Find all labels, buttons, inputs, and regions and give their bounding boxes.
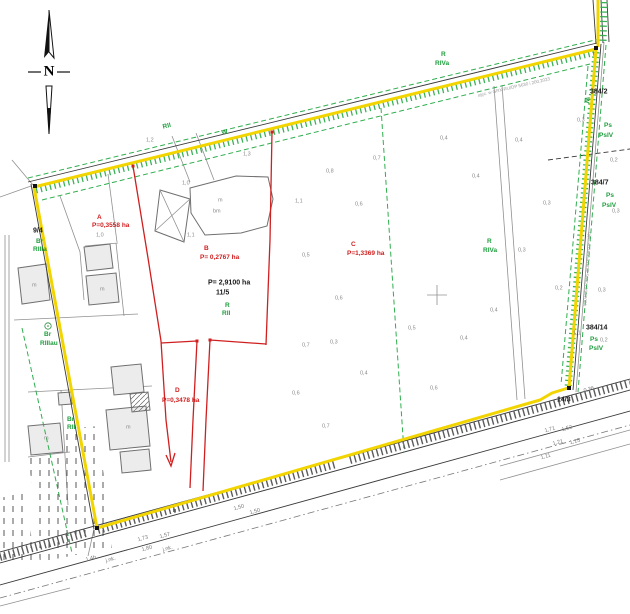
map-label: 0,8 [326, 169, 334, 175]
map-label: RII [67, 425, 75, 432]
map-label: 0,4 [515, 138, 523, 144]
map-label: 0,3 [598, 288, 606, 294]
map-label: W [582, 97, 589, 104]
map-label: 384/2 [590, 89, 608, 96]
map-label: m [44, 436, 49, 442]
map-label: RII [222, 311, 230, 318]
map-label: P= 2,9100 ha [208, 280, 250, 287]
map-canvas: NAP=0,3558 haBP= 0,2767 haCP=1,3369 haDP… [0, 0, 630, 614]
map-label: Br [44, 332, 51, 339]
map-label: Br [36, 239, 43, 246]
map-label: 0,2 [610, 158, 618, 164]
map-label: 0,3 [518, 248, 526, 254]
map-label: 0,4 [440, 136, 448, 142]
map-label: N [44, 65, 55, 80]
map-label: m [126, 425, 131, 431]
map-label: A [97, 215, 102, 222]
map-label: 0,6 [292, 391, 300, 397]
map-label: 14/3 [557, 397, 571, 404]
map-label: 0,4 [490, 308, 498, 314]
map-label: 0,6 [430, 386, 438, 392]
map-label: m [218, 198, 223, 204]
map-label: RIVa [483, 248, 497, 255]
map-label: 0,2 [600, 338, 608, 344]
map-drawing [0, 0, 630, 614]
map-label: 0,4 [472, 174, 480, 180]
map-label: Br [67, 417, 74, 424]
map-label: 11/5 [216, 290, 229, 297]
map-label: 0,7 [322, 424, 330, 430]
map-label: D [175, 388, 180, 395]
map-label: 1,1 [573, 331, 581, 337]
map-label: B [204, 246, 209, 253]
map-label: 0,5 [408, 326, 416, 332]
map-label: PsIV [589, 346, 603, 353]
map-label: 1,0 [182, 181, 190, 187]
map-label: 0,6 [335, 296, 343, 302]
map-label: RIVa [435, 61, 449, 68]
map-label: P= 0,2767 ha [200, 255, 239, 262]
map-label: m [32, 283, 37, 289]
map-label: 0,6 [355, 202, 363, 208]
map-label: R [487, 239, 492, 246]
map-label: C [351, 242, 356, 249]
map-label: 0,3 [612, 209, 620, 215]
map-label: P=0,3478 ha [162, 398, 199, 405]
map-label: m [100, 287, 105, 293]
map-label: 9/4 [33, 228, 43, 235]
map-label: R [225, 303, 230, 310]
map-label: 384/14 [586, 325, 607, 332]
map-label: 0,4 [460, 336, 468, 342]
map-label: Ps [590, 337, 598, 344]
map-label: 0,2 [555, 286, 563, 292]
map-label: P=1,3369 ha [347, 251, 384, 258]
map-label: Ps [604, 123, 612, 130]
map-label: 1,2 [146, 138, 154, 144]
map-label: RIIIa [33, 247, 47, 254]
map-label: 1,0 [96, 233, 104, 239]
map-label: 0,7 [373, 156, 381, 162]
map-label: Ps [606, 193, 614, 200]
map-label: 0,7 [302, 343, 310, 349]
map-label: RIIIau [40, 341, 58, 348]
map-label: 0,5 [302, 253, 310, 259]
map-label: 0,4 [360, 371, 368, 377]
map-label: 0,3 [577, 118, 585, 124]
map-label: 0,3 [330, 340, 338, 346]
map-label: bm [213, 209, 221, 215]
map-label: 0,3 [543, 201, 551, 207]
map-label: 384/7 [591, 180, 609, 187]
map-label: P=0,3558 ha [92, 223, 129, 230]
map-label: R [441, 52, 446, 59]
map-label: 1,1 [295, 199, 303, 205]
map-label: 1,1 [187, 233, 195, 239]
map-label: PsIV [599, 133, 613, 140]
map-label: 1,3 [243, 152, 251, 158]
